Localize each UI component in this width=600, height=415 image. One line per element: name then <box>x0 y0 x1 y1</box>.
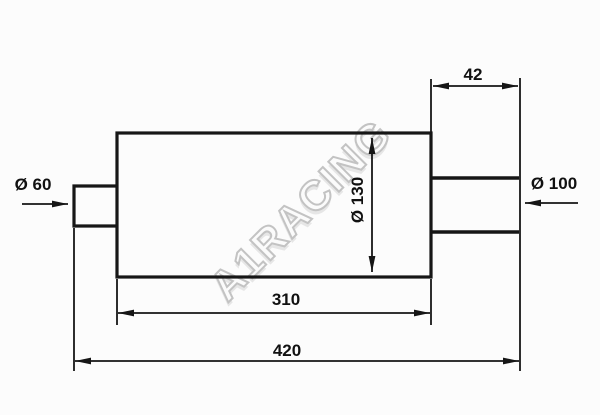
outlet-diameter-label: Ø 100 <box>521 174 587 194</box>
body-length-label: 310 <box>260 290 312 310</box>
muffler-body-outline <box>117 133 431 277</box>
outlet-stub-length-label: 42 <box>451 65 495 85</box>
overall-length-label: 420 <box>261 341 313 361</box>
inlet-pipe-outline <box>74 186 117 226</box>
inlet-diameter-label: Ø 60 <box>2 175 64 195</box>
technical-drawing-canvas: A1RACING Ø 60 Ø 100 Ø 130 <box>0 0 600 415</box>
body-diameter-label: Ø 130 <box>348 168 368 232</box>
